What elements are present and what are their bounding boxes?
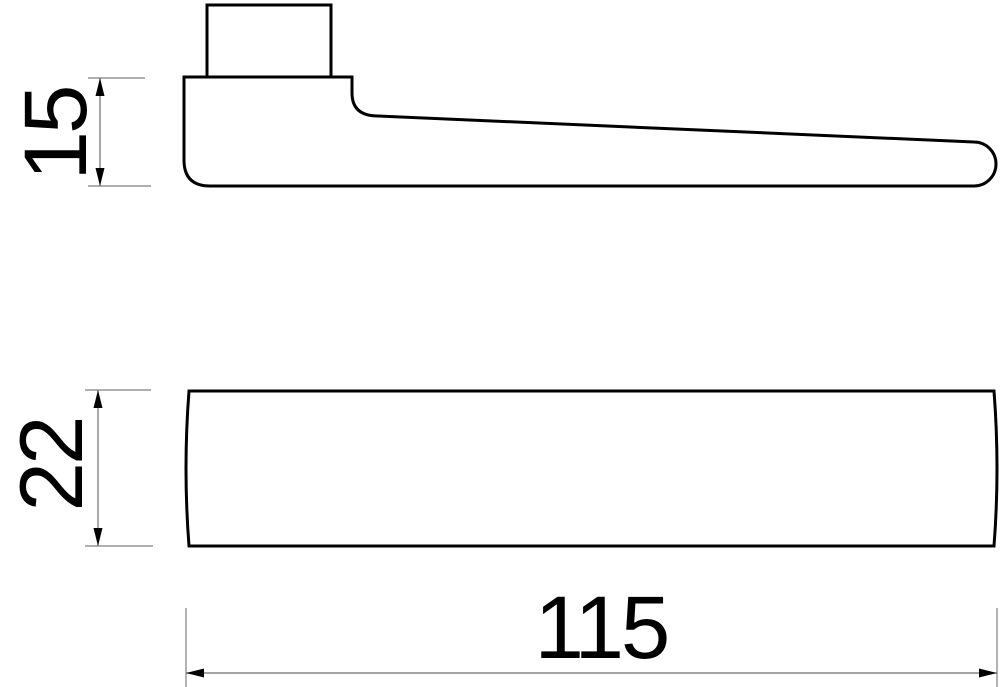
lever-outline bbox=[184, 77, 996, 186]
dimension-label-length: 115 bbox=[535, 577, 668, 677]
dimension-15: 15 bbox=[5, 78, 151, 186]
dimension-115: 115 bbox=[186, 577, 997, 687]
technical-drawing-canvas: 15 22 115 bbox=[0, 0, 1000, 687]
arrowhead-up-icon bbox=[94, 390, 103, 408]
handle-top-outline bbox=[186, 391, 997, 546]
side-view bbox=[184, 5, 996, 186]
dimension-22: 22 bbox=[1, 390, 153, 546]
dimension-label-width: 22 bbox=[1, 419, 101, 512]
arrowhead-right-icon bbox=[979, 669, 997, 678]
top-view bbox=[186, 391, 997, 546]
arrowhead-left-icon bbox=[186, 669, 204, 678]
spindle-block bbox=[207, 5, 331, 77]
door-handle-drawing: 15 22 115 bbox=[0, 0, 1000, 687]
arrowhead-down-icon bbox=[94, 528, 103, 546]
dimension-label-height: 15 bbox=[5, 88, 105, 181]
